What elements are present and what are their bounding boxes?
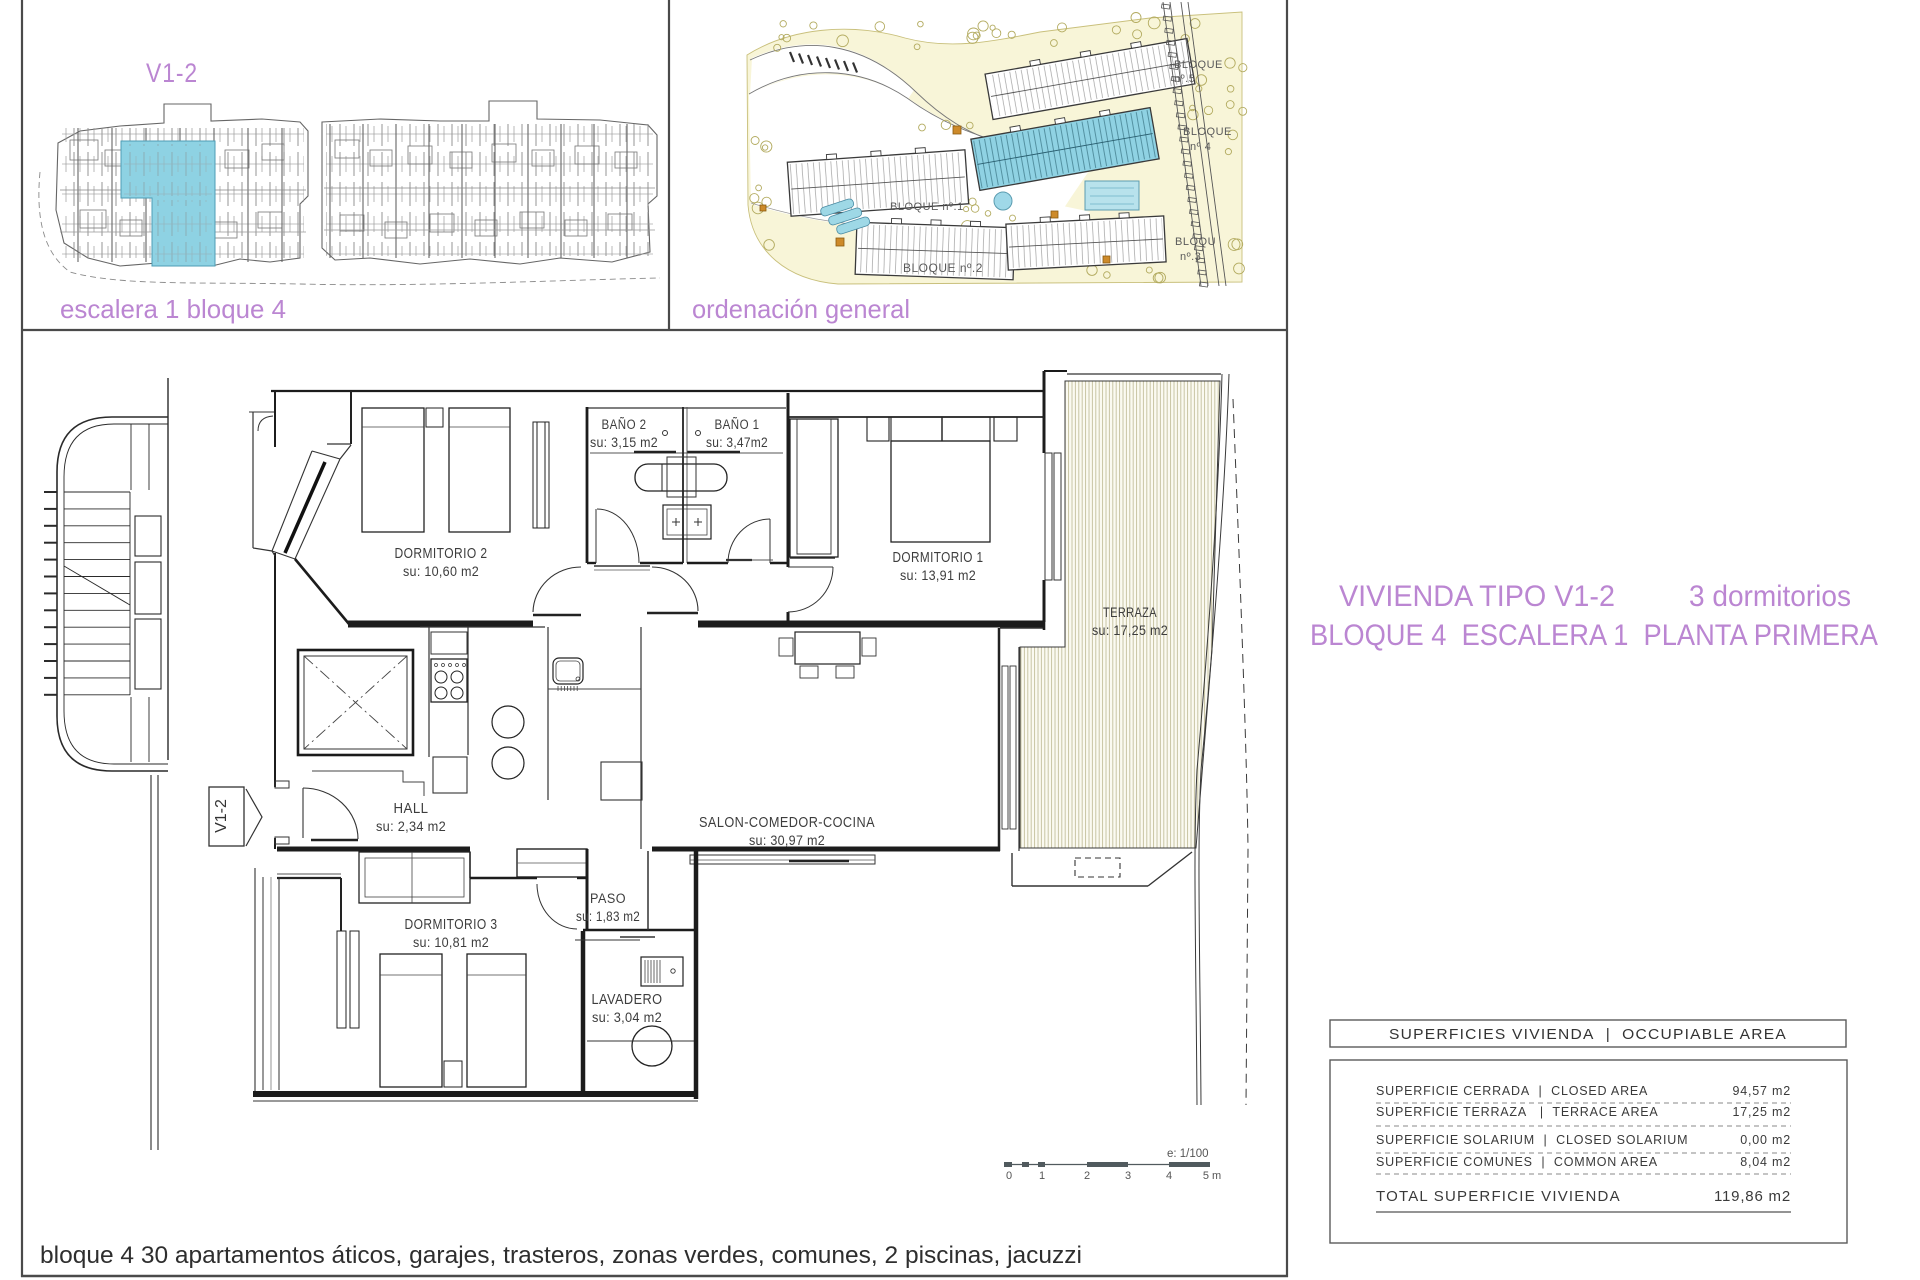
svg-text:HALL: HALL (394, 801, 429, 817)
svg-text:8,04 m2: 8,04 m2 (1740, 1155, 1791, 1169)
svg-text:SUPERFICIE COMUNES | COMMON: SUPERFICIE COMUNES | COMMON AREA (1376, 1155, 1658, 1169)
svg-text:3: 3 (1125, 1170, 1131, 1182)
svg-text:2: 2 (1084, 1170, 1090, 1182)
svg-text:DORMITORIO 1: DORMITORIO 1 (893, 550, 984, 566)
svg-text:BLOQUE nº.2: BLOQUE nº.2 (903, 261, 983, 275)
svg-text:nº 4: nº 4 (1190, 141, 1211, 153)
svg-text:su: 1,83 m2: su: 1,83 m2 (576, 909, 640, 924)
svg-text:SUPERFICIE TERRAZA | TERRAC: SUPERFICIE TERRAZA | TERRACE AREA (1376, 1105, 1659, 1119)
svg-text:nº.5: nº.5 (1174, 73, 1195, 85)
svg-text:e: 1/100: e: 1/100 (1167, 1148, 1209, 1160)
svg-text:su: 10,60 m2: su: 10,60 m2 (403, 564, 479, 579)
svg-text:3 dormitorios: 3 dormitorios (1689, 580, 1851, 613)
svg-text:BLOQUE 4 ESCALERA 1 PLANTA P: BLOQUE 4 ESCALERA 1 PLANTA PRIMERA (1310, 619, 1878, 652)
svg-text:nº.3: nº.3 (1180, 251, 1201, 263)
svg-text:119,86 m2: 119,86 m2 (1714, 1188, 1791, 1205)
svg-text:DORMITORIO 2: DORMITORIO 2 (395, 546, 488, 562)
svg-text:94,57 m2: 94,57 m2 (1732, 1084, 1791, 1098)
svg-text:escalera 1 bloque 4: escalera 1 bloque 4 (60, 294, 286, 324)
svg-text:1: 1 (1039, 1170, 1045, 1182)
svg-text:0,00 m2: 0,00 m2 (1740, 1133, 1791, 1147)
svg-text:SUPERFICIE CERRADA | CLOSED: SUPERFICIE CERRADA | CLOSED AREA (1376, 1084, 1648, 1098)
svg-text:SUPERFICIE SOLARIUM | CLOSED: SUPERFICIE SOLARIUM | CLOSED SOLARIUM (1376, 1133, 1688, 1147)
svg-text:su: 2,34 m2: su: 2,34 m2 (376, 819, 446, 834)
svg-text:su: 10,81 m2: su: 10,81 m2 (413, 935, 489, 950)
svg-text:BLOQUE nº.1: BLOQUE nº.1 (890, 201, 964, 213)
svg-text:SALON-COMEDOR-COCINA: SALON-COMEDOR-COCINA (699, 815, 875, 831)
svg-text:17,25 m2: 17,25 m2 (1732, 1105, 1791, 1119)
svg-text:su: 3,47m2: su: 3,47m2 (706, 435, 768, 450)
svg-text:V1-2: V1-2 (146, 58, 198, 88)
svg-text:BLOQUE: BLOQUE (1183, 126, 1232, 138)
svg-text:BAÑO 1: BAÑO 1 (715, 417, 760, 432)
svg-text:DORMITORIO 3: DORMITORIO 3 (405, 917, 498, 933)
svg-text:TOTAL SUPERFICIE VIVIENDA: TOTAL SUPERFICIE VIVIENDA (1376, 1188, 1621, 1205)
svg-text:BLOQUE: BLOQUE (1174, 59, 1223, 71)
svg-text:BLOQU: BLOQU (1175, 236, 1216, 248)
svg-text:su: 3,04 m2: su: 3,04 m2 (592, 1010, 662, 1025)
svg-text:su: 30,97 m2: su: 30,97 m2 (749, 833, 825, 848)
svg-text:bloque 4 30 apartamentos ático: bloque 4 30 apartamentos áticos, garajes… (40, 1242, 1082, 1269)
svg-text:VIVIENDA TIPO V1-2: VIVIENDA TIPO V1-2 (1339, 580, 1615, 613)
svg-text:4: 4 (1166, 1170, 1172, 1182)
svg-text:su: 13,91 m2: su: 13,91 m2 (900, 568, 976, 583)
svg-text:LAVADERO: LAVADERO (592, 992, 663, 1008)
svg-text:PASO: PASO (590, 891, 626, 906)
svg-text:ordenación general: ordenación general (692, 294, 910, 324)
svg-text:su: 3,15 m2: su: 3,15 m2 (590, 435, 658, 450)
svg-text:su: 17,25 m2: su: 17,25 m2 (1092, 623, 1168, 638)
svg-text:0: 0 (1006, 1170, 1012, 1182)
svg-text:BAÑO 2: BAÑO 2 (602, 417, 647, 432)
svg-text:V1-2: V1-2 (213, 799, 230, 833)
svg-text:TERRAZA: TERRAZA (1103, 605, 1157, 620)
svg-text:SUPERFICIES VIVIENDA | OCCUP: SUPERFICIES VIVIENDA | OCCUPIABLE AREA (1389, 1026, 1787, 1043)
svg-text:5 m: 5 m (1203, 1170, 1221, 1182)
